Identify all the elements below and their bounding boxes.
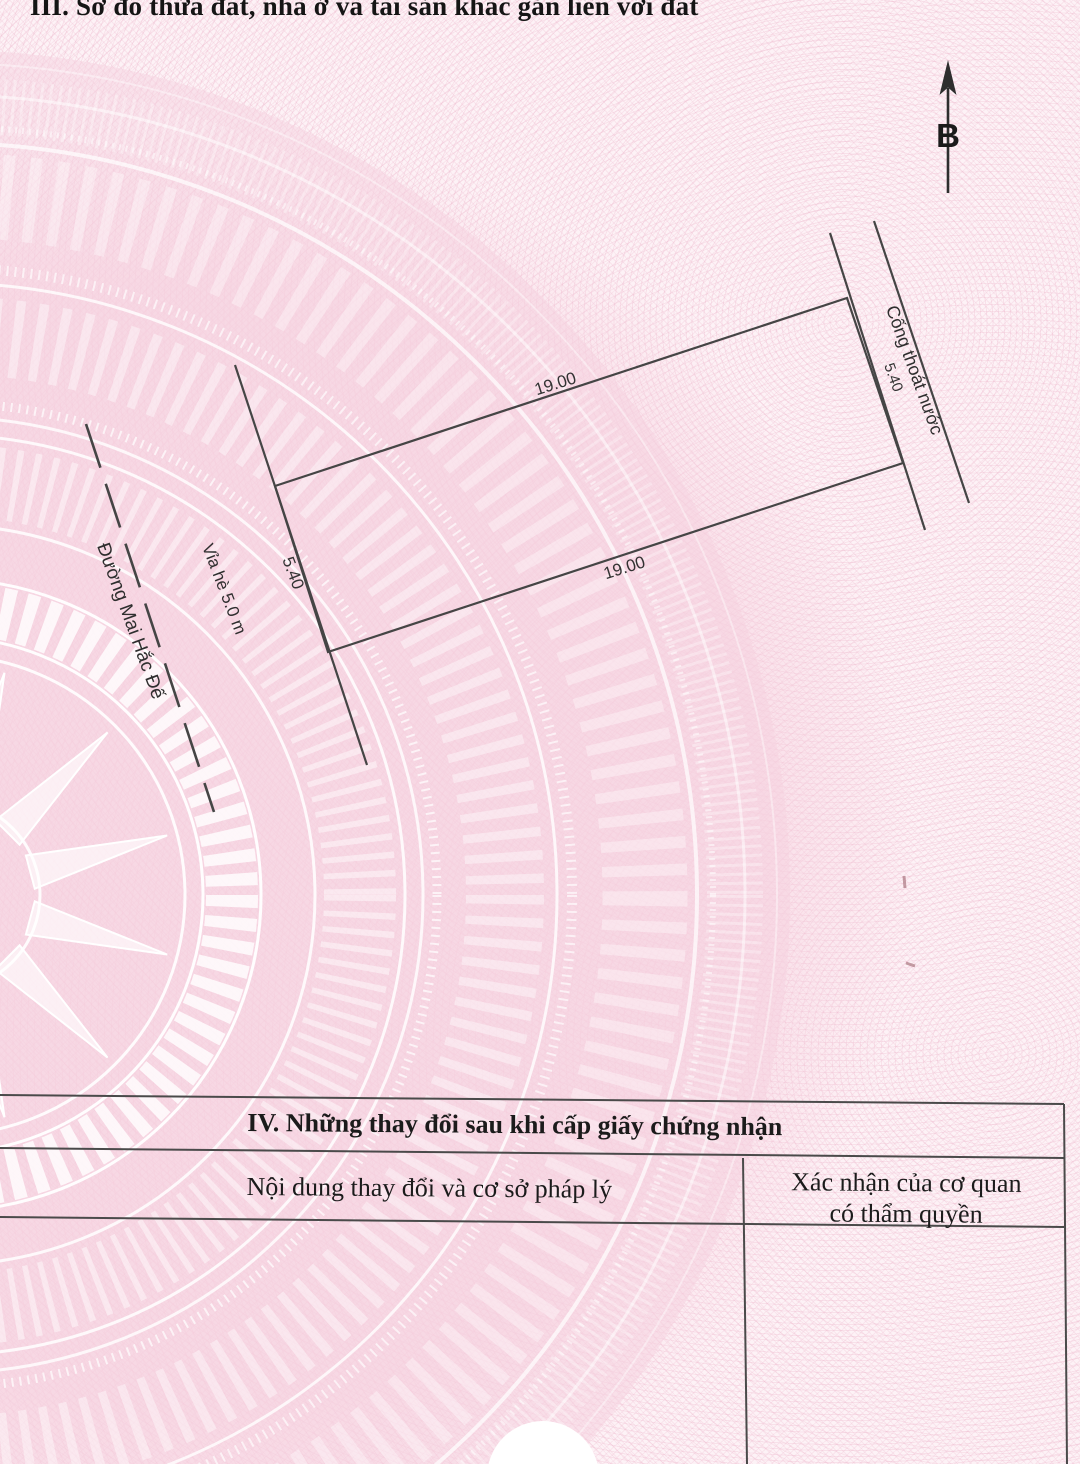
certificate-page: B 19.00 19.00 5.40 5.40 Cống thoát nước … bbox=[0, 0, 1080, 1464]
column-header-changes: Nội dung thay đổi và cơ sở pháp lý bbox=[94, 1171, 764, 1206]
column-header-confirmation-line2: có thẩm quyền bbox=[747, 1197, 1065, 1230]
column-header-confirmation-line1: Xác nhận của cơ quan bbox=[747, 1166, 1065, 1199]
section4-table: IV. Những thay đổi sau khi cấp giấy chứn… bbox=[0, 0, 1080, 1464]
column-header-confirmation: Xác nhận của cơ quan có thẩm quyền bbox=[747, 1166, 1065, 1230]
section4-title: IV. Những thay đổi sau khi cấp giấy chứn… bbox=[0, 1106, 1030, 1144]
